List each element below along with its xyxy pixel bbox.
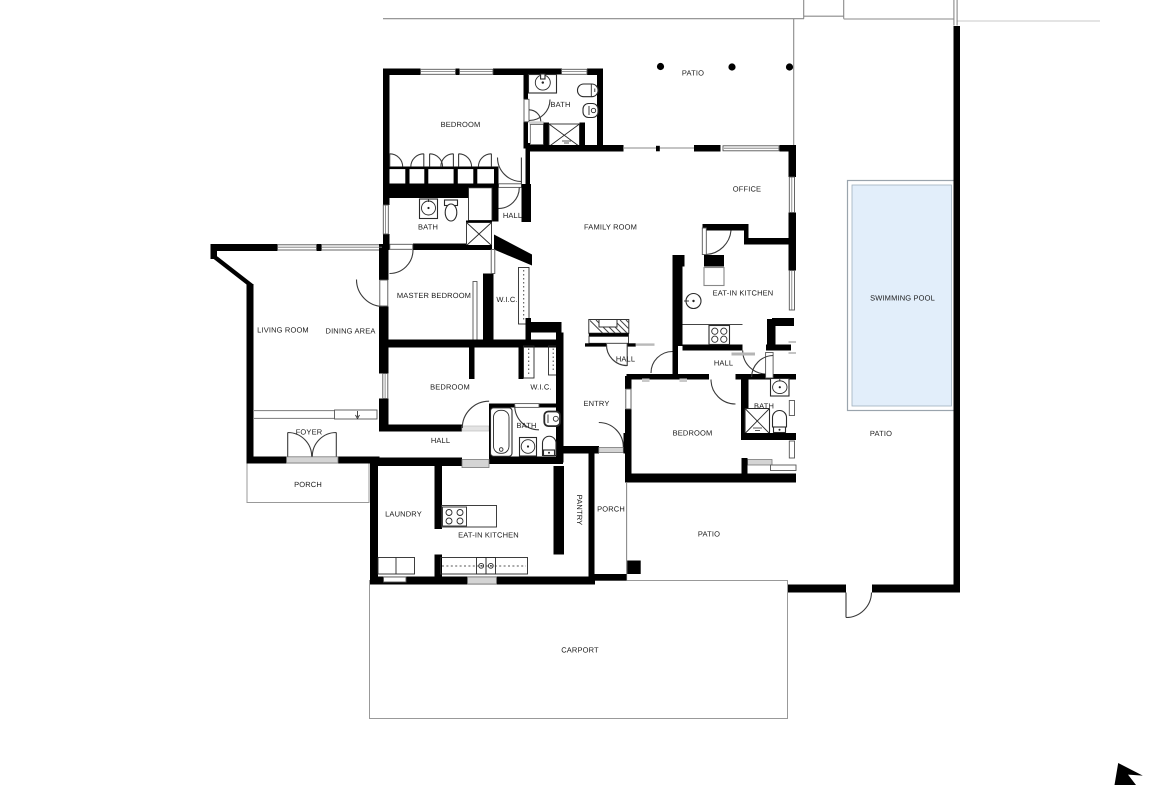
svg-text:EAT-IN KITCHEN: EAT-IN KITCHEN (458, 531, 519, 540)
svg-text:BEDROOM: BEDROOM (441, 120, 481, 129)
svg-text:ENTRY: ENTRY (583, 399, 609, 408)
svg-text:BEDROOM: BEDROOM (673, 429, 713, 438)
svg-text:LAUNDRY: LAUNDRY (385, 510, 422, 519)
svg-text:PATIO: PATIO (870, 429, 892, 438)
svg-text:BEDROOM: BEDROOM (430, 383, 470, 392)
svg-text:OFFICE: OFFICE (733, 185, 761, 194)
svg-text:SWIMMING POOL: SWIMMING POOL (870, 294, 935, 303)
svg-text:MASTER BEDROOM: MASTER BEDROOM (397, 291, 471, 300)
svg-text:PATIO: PATIO (682, 69, 704, 78)
svg-text:PANTRY: PANTRY (575, 495, 584, 526)
svg-text:BATH: BATH (516, 421, 536, 430)
svg-text:BATH: BATH (754, 402, 774, 411)
svg-text:HALL: HALL (503, 211, 522, 220)
svg-text:W.I.C.: W.I.C. (530, 383, 551, 392)
svg-text:PATIO: PATIO (698, 530, 720, 539)
svg-text:BATH: BATH (418, 223, 438, 232)
svg-text:LIVING ROOM: LIVING ROOM (257, 326, 309, 335)
svg-text:FAMILY ROOM: FAMILY ROOM (584, 223, 637, 232)
svg-text:CARPORT: CARPORT (561, 646, 599, 655)
svg-text:BATH: BATH (550, 100, 570, 109)
svg-text:W.I.C.: W.I.C. (496, 295, 517, 304)
svg-text:FOYER: FOYER (296, 428, 323, 437)
svg-text:PORCH: PORCH (597, 505, 625, 514)
svg-text:PORCH: PORCH (294, 480, 322, 489)
svg-text:HALL: HALL (431, 436, 450, 445)
svg-text:DINING AREA: DINING AREA (326, 327, 376, 336)
svg-text:HALL: HALL (616, 355, 635, 364)
svg-text:EAT-IN KITCHEN: EAT-IN KITCHEN (713, 289, 774, 298)
svg-text:HALL: HALL (714, 359, 733, 368)
